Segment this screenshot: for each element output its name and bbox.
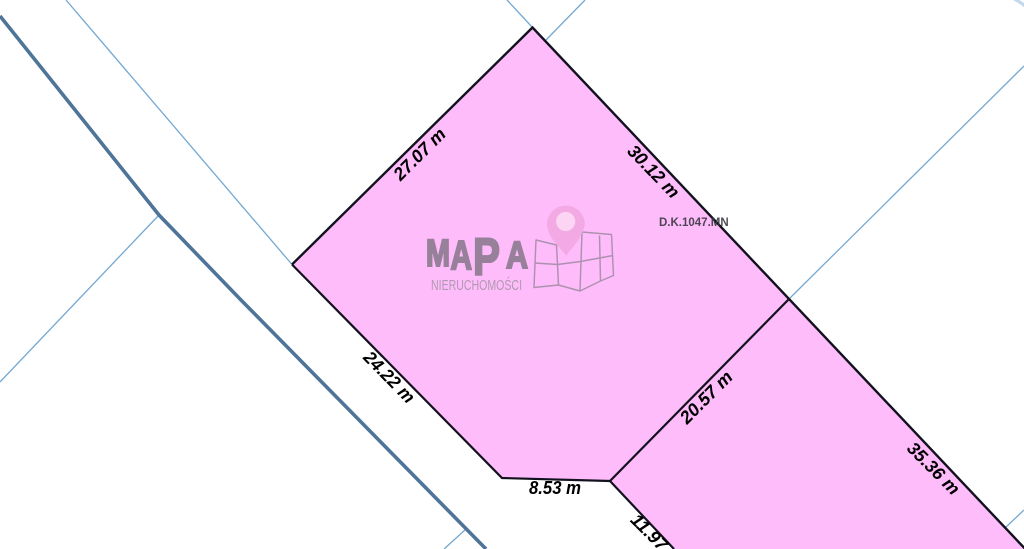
svg-text:D.K.1047.MN: D.K.1047.MN — [659, 217, 729, 229]
svg-text:8.53 m: 8.53 m — [529, 478, 581, 498]
svg-text:M: M — [426, 233, 450, 275]
svg-text:A: A — [506, 235, 528, 277]
svg-text:A: A — [451, 232, 473, 278]
svg-text:NIERUCHOMOŚCI: NIERUCHOMOŚCI — [431, 276, 522, 294]
